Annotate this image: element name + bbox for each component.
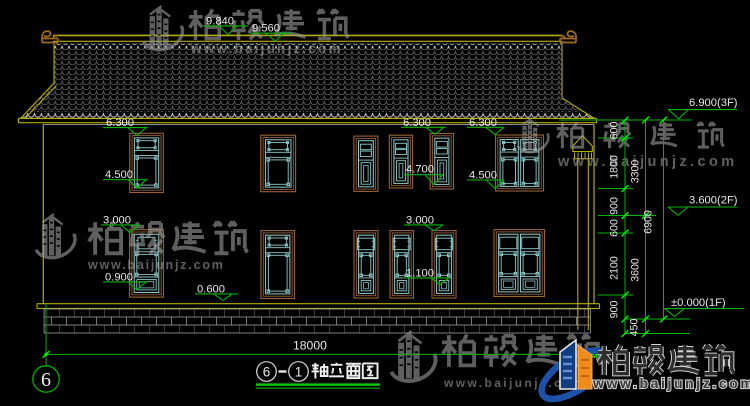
svg-text:www.baijunjz.com: www.baijunjz.com — [87, 258, 225, 272]
svg-text:1800: 1800 — [609, 155, 621, 179]
svg-text:6: 6 — [263, 365, 271, 380]
svg-text:3600: 3600 — [630, 258, 642, 282]
svg-text:6.900(3F): 6.900(3F) — [689, 97, 738, 109]
svg-text:1: 1 — [295, 365, 303, 380]
svg-text:www.baijunjz.com: www.baijunjz.com — [557, 154, 738, 170]
svg-text:450: 450 — [629, 319, 641, 337]
svg-text:www.baijunjz.com: www.baijunjz.com — [190, 41, 343, 56]
svg-text:6: 6 — [41, 369, 51, 391]
svg-text:2100: 2100 — [609, 256, 621, 280]
svg-text:3300: 3300 — [630, 160, 642, 184]
svg-text:±0.000(1F): ±0.000(1F) — [671, 297, 726, 309]
svg-text:3.600(2F): 3.600(2F) — [689, 194, 738, 206]
svg-text:www.baijunjz.com: www.baijunjz.com — [592, 375, 750, 391]
svg-text:18000: 18000 — [293, 339, 327, 353]
svg-text:900: 900 — [609, 301, 621, 319]
svg-text:600: 600 — [609, 122, 621, 140]
svg-text:4.700: 4.700 — [406, 164, 434, 176]
svg-text:600: 600 — [609, 219, 621, 237]
svg-text:900: 900 — [609, 197, 621, 215]
svg-text:6900: 6900 — [643, 210, 655, 234]
